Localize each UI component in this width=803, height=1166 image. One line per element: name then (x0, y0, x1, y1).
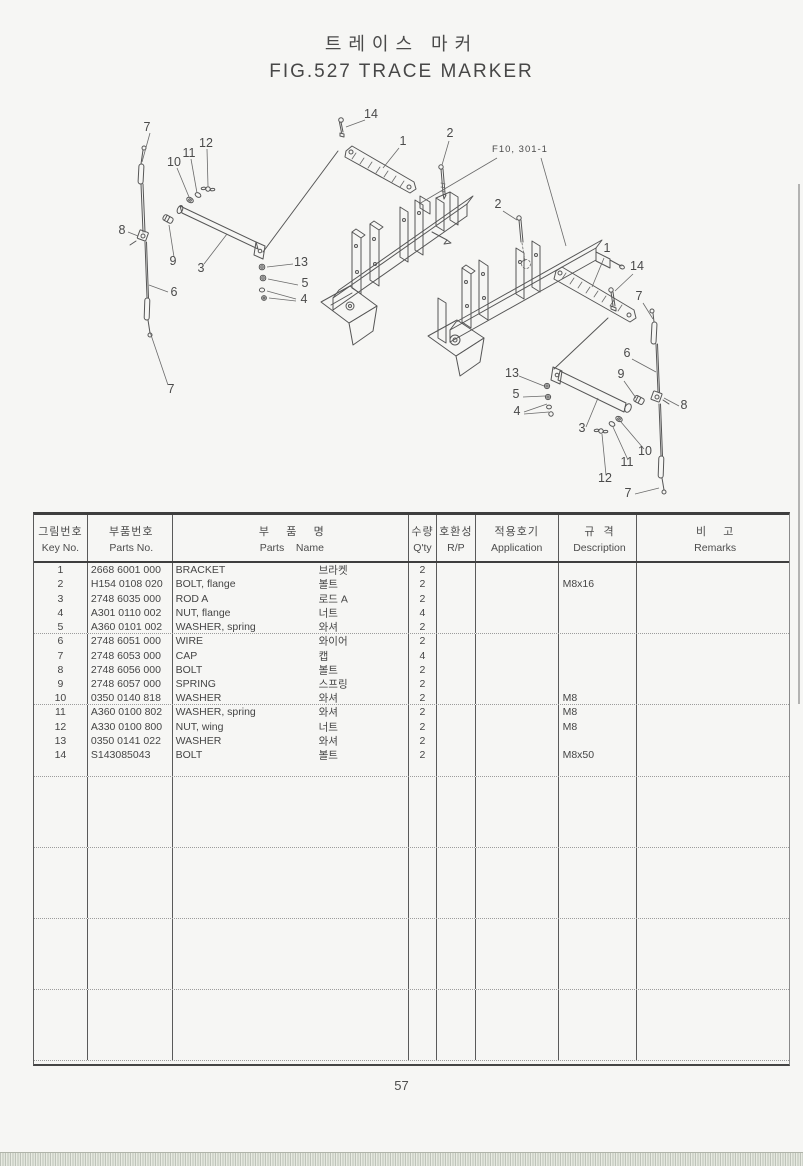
cell-rp (437, 990, 476, 1004)
cell-rp (437, 734, 476, 748)
cell-parts-no: H154 0108 020 (88, 577, 173, 591)
cell-remarks (637, 777, 789, 791)
cell-parts-name (173, 1047, 409, 1060)
cell-key-no: 11 (34, 705, 88, 719)
cell-description: M8 (559, 720, 638, 734)
cell-rp (437, 1047, 476, 1060)
parts-table-body: 1 2668 6001 000 BRACKET 브라켓 2 2 H154 010… (34, 563, 789, 1064)
cell-remarks (637, 919, 789, 933)
cell-remarks (637, 876, 789, 890)
cell-remarks (637, 947, 789, 961)
cell-application (476, 634, 559, 648)
cell-parts-name (173, 919, 409, 933)
cell-remarks (637, 933, 789, 947)
cell-qty (409, 805, 437, 819)
cell-parts-no (88, 762, 173, 775)
table-row: 3 2748 6035 000 ROD A 로드 A 2 (34, 591, 789, 605)
cell-rp (437, 1033, 476, 1047)
cell-qty (409, 1033, 437, 1047)
table-row (34, 933, 789, 947)
cell-parts-no (88, 833, 173, 846)
cell-parts-name: BRACKET 브라켓 (173, 563, 409, 577)
cell-parts-no (88, 905, 173, 918)
cell-parts-name: BOLT 볼트 (173, 663, 409, 677)
callout-2: 2 (447, 126, 454, 140)
cell-application (476, 905, 559, 918)
cell-application (476, 919, 559, 933)
callout-6: 6 (171, 285, 178, 299)
table-row (34, 947, 789, 961)
cell-rp (437, 805, 476, 819)
cell-qty: 2 (409, 563, 437, 577)
callout-6: 6 (624, 346, 631, 360)
cell-qty (409, 1004, 437, 1018)
cell-application (476, 933, 559, 947)
table-row (34, 833, 789, 847)
part-name-korean: 로드 A (319, 591, 348, 605)
table-row (34, 890, 789, 904)
cell-parts-no (88, 1019, 173, 1033)
callout-5: 5 (513, 387, 520, 401)
cell-parts-name (173, 777, 409, 791)
cell-description (559, 947, 638, 961)
cell-parts-no: 0350 0140 818 (88, 691, 173, 704)
cell-description (559, 734, 638, 748)
cell-rp (437, 919, 476, 933)
callout-7: 7 (168, 382, 175, 396)
cell-rp (437, 962, 476, 976)
part-name-english: WASHER, spring (176, 621, 256, 633)
cell-parts-no: A301 0110 002 (88, 606, 173, 620)
table-row (34, 1019, 789, 1033)
cell-parts-no (88, 933, 173, 947)
cell-key-no: 2 (34, 577, 88, 591)
cell-parts-name (173, 947, 409, 961)
table-row (34, 805, 789, 819)
cell-parts-name (173, 791, 409, 805)
cell-remarks (637, 762, 789, 775)
callout-9: 9 (618, 367, 625, 381)
cell-description (559, 591, 638, 605)
part-name-korean: 너트 (319, 606, 338, 620)
cell-remarks (637, 805, 789, 819)
cell-application (476, 962, 559, 976)
rod-left (176, 151, 338, 300)
part-name-korean: 볼트 (319, 663, 338, 677)
part-name-korean: 볼트 (319, 577, 338, 591)
cell-parts-no (88, 976, 173, 989)
cell-qty (409, 990, 437, 1004)
table-row: 14 S143085043 BOLT 볼트 2 M8x50 (34, 748, 789, 762)
cell-parts-no: S143085043 (88, 748, 173, 762)
cell-parts-name (173, 976, 409, 989)
table-row: 7 2748 6053 000 CAP 캡 4 (34, 648, 789, 662)
cell-parts-name (173, 862, 409, 876)
col-header-description: 규 격 Description (559, 515, 638, 561)
cell-parts-no (88, 1004, 173, 1018)
cell-rp (437, 819, 476, 833)
cell-remarks (637, 663, 789, 677)
cell-parts-no: A360 0101 002 (88, 620, 173, 633)
cell-rp (437, 890, 476, 904)
cell-parts-no: A330 0100 800 (88, 720, 173, 734)
cell-key-no (34, 876, 88, 890)
cell-key-no (34, 947, 88, 961)
cell-application (476, 677, 559, 691)
part-name-english: SPRING (176, 678, 216, 690)
cell-qty: 2 (409, 663, 437, 677)
cell-remarks (637, 620, 789, 633)
table-row: 9 2748 6057 000 SPRING 스프링 2 (34, 677, 789, 691)
table-row: 4 A301 0110 002 NUT, flange 너트 4 (34, 606, 789, 620)
table-row (34, 919, 789, 933)
cell-remarks (637, 705, 789, 719)
cell-key-no: 10 (34, 691, 88, 704)
cell-parts-no (88, 1033, 173, 1047)
table-row (34, 819, 789, 833)
callout-10: 10 (638, 444, 652, 458)
cell-parts-name (173, 848, 409, 862)
cell-rp (437, 876, 476, 890)
cell-rp (437, 862, 476, 876)
cell-description (559, 905, 638, 918)
cell-key-no: 13 (34, 734, 88, 748)
cell-rp (437, 933, 476, 947)
cell-remarks (637, 890, 789, 904)
cell-key-no: 9 (34, 677, 88, 691)
cell-qty: 2 (409, 577, 437, 591)
cell-description (559, 990, 638, 1004)
page-title-korean: 트레이스 마커 (0, 30, 803, 56)
cell-application (476, 862, 559, 876)
cell-description (559, 848, 638, 862)
cell-parts-name: WASHER 와셔 (173, 691, 409, 704)
cell-description (559, 862, 638, 876)
cell-parts-no: 2748 6057 000 (88, 677, 173, 691)
cell-qty (409, 919, 437, 933)
cell-parts-no (88, 848, 173, 862)
part-name-korean: 너트 (319, 720, 338, 734)
cell-parts-no (88, 919, 173, 933)
cell-qty: 2 (409, 634, 437, 648)
table-row (34, 777, 789, 791)
cell-description: M8 (559, 705, 638, 719)
cell-qty (409, 933, 437, 947)
cell-application (476, 663, 559, 677)
cell-application (476, 791, 559, 805)
cell-parts-name (173, 876, 409, 890)
callout-1: 1 (400, 134, 407, 148)
cell-remarks (637, 791, 789, 805)
fasteners-left (162, 182, 216, 224)
cell-qty (409, 1019, 437, 1033)
part-name-english: WIRE (176, 635, 203, 647)
cell-parts-no: 2748 6053 000 (88, 648, 173, 662)
cell-remarks (637, 962, 789, 976)
callout-8: 8 (681, 398, 688, 412)
cell-remarks (637, 1004, 789, 1018)
cell-application (476, 606, 559, 620)
cell-parts-no (88, 1047, 173, 1060)
cell-application (476, 947, 559, 961)
cell-parts-no: 2668 6001 000 (88, 563, 173, 577)
cell-description (559, 663, 638, 677)
cell-parts-name (173, 1033, 409, 1047)
cell-parts-no (88, 777, 173, 791)
cell-key-no (34, 1004, 88, 1018)
part-name-english: BOLT (176, 664, 203, 676)
cell-application (476, 1047, 559, 1060)
cell-parts-no (88, 876, 173, 890)
callout-7: 7 (625, 486, 632, 500)
col-header-application: 적용호기 Application (476, 515, 559, 561)
cell-key-no (34, 976, 88, 989)
cell-remarks (637, 577, 789, 591)
cell-description (559, 890, 638, 904)
callout-2: 2 (495, 197, 502, 211)
cell-application (476, 990, 559, 1004)
cell-parts-no: A360 0100 802 (88, 705, 173, 719)
cell-description (559, 976, 638, 989)
part-name-korean: 와셔 (319, 620, 338, 633)
wire-assembly-left (130, 146, 152, 337)
part-name-english: WASHER, spring (176, 706, 256, 718)
cell-rp (437, 848, 476, 862)
cell-application (476, 734, 559, 748)
cell-parts-name: ROD A 로드 A (173, 591, 409, 605)
cell-remarks (637, 848, 789, 862)
cell-qty (409, 1047, 437, 1060)
part-name-english: WASHER (176, 692, 222, 704)
cell-description (559, 819, 638, 833)
table-row: 11 A360 0100 802 WASHER, spring 와셔 2 M8 (34, 705, 789, 719)
cell-parts-no: 2748 6051 000 (88, 634, 173, 648)
cell-description (559, 762, 638, 775)
cell-application (476, 648, 559, 662)
cell-remarks (637, 734, 789, 748)
cell-remarks (637, 748, 789, 762)
table-row (34, 905, 789, 919)
cell-qty (409, 833, 437, 846)
cell-remarks (637, 591, 789, 605)
frame-assembly-2 (428, 240, 625, 376)
cell-key-no (34, 933, 88, 947)
cell-description (559, 606, 638, 620)
part-name-korean: 볼트 (319, 748, 338, 762)
callout-11: 11 (621, 455, 634, 469)
cell-parts-no: 2748 6035 000 (88, 591, 173, 605)
cell-description (559, 777, 638, 791)
table-row (34, 962, 789, 976)
cell-qty (409, 890, 437, 904)
part-name-english: NUT, wing (176, 721, 224, 733)
cell-key-no: 3 (34, 591, 88, 605)
rod-1-left (345, 146, 416, 193)
bolt-14-right (609, 288, 616, 311)
cell-description (559, 648, 638, 662)
cell-description: M8x16 (559, 577, 638, 591)
cell-remarks (637, 905, 789, 918)
cell-parts-name (173, 990, 409, 1004)
cell-parts-name (173, 819, 409, 833)
cell-qty (409, 819, 437, 833)
cell-parts-name: BOLT, flange 볼트 (173, 577, 409, 591)
cell-qty: 2 (409, 748, 437, 762)
part-name-english: BOLT, flange (176, 578, 236, 590)
cell-qty: 2 (409, 591, 437, 605)
col-header-key-no: 그림번호 Key No. (34, 515, 88, 561)
cell-rp (437, 563, 476, 577)
cell-application (476, 1033, 559, 1047)
callout-11: 11 (183, 146, 196, 160)
title-block: 트레이스 마커 FIG.527 TRACE MARKER (0, 30, 803, 83)
part-name-korean: 브라켓 (319, 563, 348, 577)
cell-rp (437, 677, 476, 691)
cell-key-no (34, 777, 88, 791)
cell-parts-name: BOLT 볼트 (173, 748, 409, 762)
cell-description (559, 833, 638, 846)
cell-key-no: 8 (34, 663, 88, 677)
cell-remarks (637, 648, 789, 662)
cell-parts-name: NUT, flange 너트 (173, 606, 409, 620)
callout-14: 14 (630, 259, 644, 273)
callout-3: 3 (198, 261, 205, 275)
table-row (34, 862, 789, 876)
cell-remarks (637, 563, 789, 577)
cell-key-no: 1 (34, 563, 88, 577)
table-row (34, 1033, 789, 1047)
cell-application (476, 890, 559, 904)
cell-key-no (34, 1019, 88, 1033)
cell-application (476, 805, 559, 819)
cell-key-no: 12 (34, 720, 88, 734)
cell-description (559, 791, 638, 805)
part-name-korean: 와셔 (319, 734, 338, 748)
callout-12: 12 (598, 471, 612, 485)
cell-parts-no: 2748 6056 000 (88, 663, 173, 677)
cell-application (476, 620, 559, 633)
cell-key-no (34, 1047, 88, 1060)
cell-remarks (637, 1033, 789, 1047)
cell-parts-no: 0350 0141 022 (88, 734, 173, 748)
table-row (34, 976, 789, 990)
cell-key-no (34, 962, 88, 976)
cell-parts-no (88, 947, 173, 961)
cell-application (476, 577, 559, 591)
cell-key-no (34, 890, 88, 904)
cell-application (476, 848, 559, 862)
cell-key-no (34, 819, 88, 833)
part-name-korean: 와셔 (319, 691, 338, 704)
table-row: 1 2668 6001 000 BRACKET 브라켓 2 (34, 563, 789, 577)
callout-3: 3 (579, 421, 586, 435)
table-row: 2 H154 0108 020 BOLT, flange 볼트 2 M8x16 (34, 577, 789, 591)
col-header-remarks: 비 고 Remarks (637, 515, 789, 561)
cell-rp (437, 634, 476, 648)
cell-key-no (34, 919, 88, 933)
cell-parts-name (173, 1004, 409, 1018)
cell-remarks (637, 1019, 789, 1033)
cell-qty (409, 947, 437, 961)
cell-rp (437, 791, 476, 805)
cell-description (559, 1033, 638, 1047)
cell-qty: 4 (409, 648, 437, 662)
cell-rp (437, 606, 476, 620)
col-header-rp: 호환성 R/P (437, 515, 476, 561)
cell-rp (437, 720, 476, 734)
table-row: 10 0350 0140 818 WASHER 와셔 2 M8 (34, 691, 789, 705)
cell-qty (409, 762, 437, 775)
part-name-korean: 캡 (319, 648, 329, 662)
cell-rp (437, 748, 476, 762)
bolt-14-left (339, 118, 344, 137)
cell-rp (437, 591, 476, 605)
parts-table-header: 그림번호 Key No. 부품번호 Parts No. 부 품 명 Parts … (34, 515, 789, 563)
wire-assembly-right (650, 309, 669, 494)
cell-key-no: 7 (34, 648, 88, 662)
cell-rp (437, 691, 476, 704)
cell-key-no (34, 762, 88, 775)
cell-qty (409, 905, 437, 918)
cell-remarks (637, 720, 789, 734)
callout-7: 7 (144, 120, 151, 134)
table-row: 8 2748 6056 000 BOLT 볼트 2 (34, 663, 789, 677)
callout-13: 13 (505, 366, 519, 380)
cell-parts-no (88, 890, 173, 904)
cell-application (476, 777, 559, 791)
cell-rp (437, 777, 476, 791)
cell-parts-no (88, 962, 173, 976)
cell-parts-no (88, 819, 173, 833)
cell-application (476, 762, 559, 775)
cell-description (559, 1019, 638, 1033)
callout-4: 4 (301, 292, 308, 306)
table-row: 12 A330 0100 800 NUT, wing 너트 2 M8 (34, 720, 789, 734)
cell-parts-name (173, 833, 409, 846)
callout-13: 13 (294, 255, 308, 269)
cell-key-no (34, 1033, 88, 1047)
part-name-english: CAP (176, 650, 198, 662)
cell-qty (409, 791, 437, 805)
cell-qty (409, 976, 437, 989)
cell-remarks (637, 976, 789, 989)
cell-application (476, 976, 559, 989)
cell-description (559, 1004, 638, 1018)
cell-qty (409, 777, 437, 791)
cell-parts-name (173, 805, 409, 819)
cell-description (559, 677, 638, 691)
cell-description (559, 919, 638, 933)
part-name-english: NUT, flange (176, 607, 231, 619)
cell-key-no: 4 (34, 606, 88, 620)
cell-description (559, 876, 638, 890)
col-header-parts-no: 부품번호 Parts No. (88, 515, 173, 561)
part-name-english: BOLT (176, 749, 203, 761)
col-header-parts-name: 부 품 명 Parts Name (173, 515, 409, 561)
callout-12: 12 (199, 136, 213, 150)
cell-description: M8 (559, 691, 638, 704)
cell-remarks (637, 862, 789, 876)
cell-parts-name: WASHER 와셔 (173, 734, 409, 748)
cell-rp (437, 976, 476, 989)
parts-table: 그림번호 Key No. 부품번호 Parts No. 부 품 명 Parts … (33, 512, 790, 1066)
cell-description (559, 1047, 638, 1060)
cell-qty (409, 876, 437, 890)
page-number: 57 (0, 1078, 803, 1093)
cell-application (476, 720, 559, 734)
cell-remarks (637, 1047, 789, 1060)
scan-noise-strip (0, 1152, 803, 1166)
